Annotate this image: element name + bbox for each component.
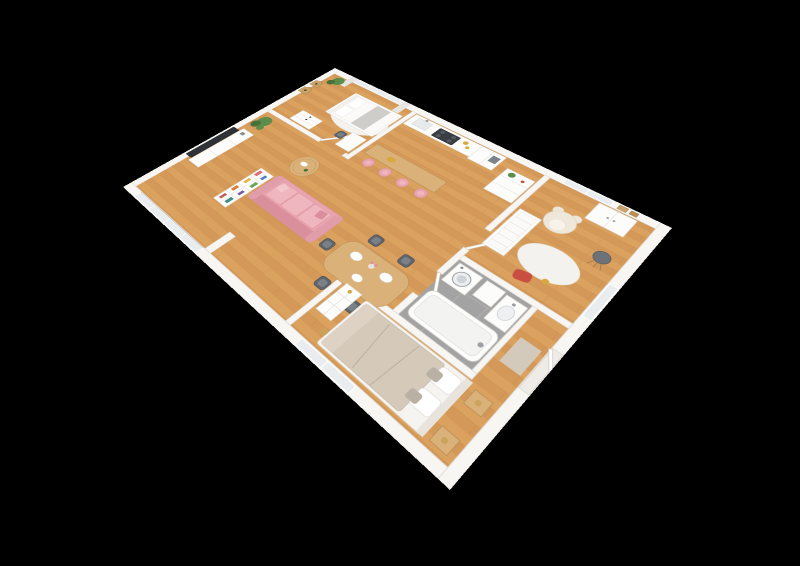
apartment-plan <box>123 68 672 490</box>
entrance-door-leaf <box>549 349 553 396</box>
floorplan-render <box>0 0 800 566</box>
